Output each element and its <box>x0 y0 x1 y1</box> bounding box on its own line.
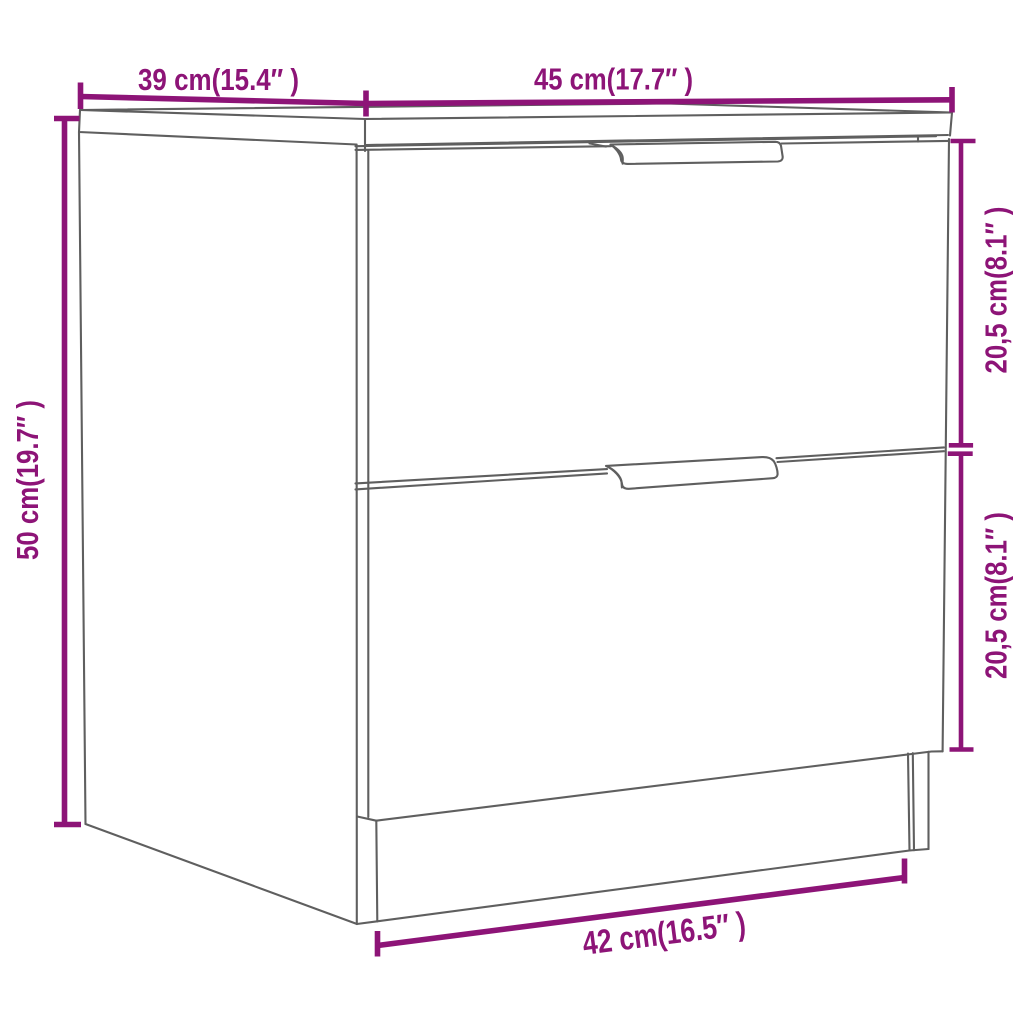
svg-text:45 cm(17.7″ ): 45 cm(17.7″ ) <box>534 62 693 97</box>
svg-text:20,5 cm(8.1″ ): 20,5 cm(8.1″ ) <box>979 207 1014 374</box>
svg-text:20,5 cm(8.1″ ): 20,5 cm(8.1″ ) <box>979 512 1014 679</box>
svg-text:50 cm(19.7″ ): 50 cm(19.7″ ) <box>10 400 45 560</box>
svg-text:39 cm(15.4″ ): 39 cm(15.4″ ) <box>138 62 299 97</box>
